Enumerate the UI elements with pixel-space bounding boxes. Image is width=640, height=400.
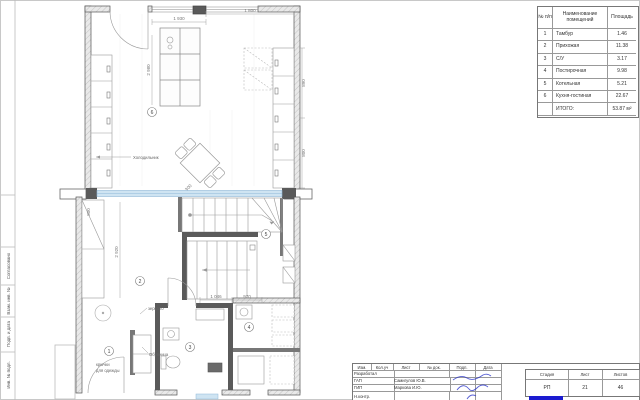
- mirror-callout: зеркало: [140, 306, 164, 314]
- boiler-room: [283, 245, 295, 283]
- row-area: 22.67: [608, 91, 636, 103]
- row-num: 3: [538, 54, 553, 66]
- dim-right-b: 800: [301, 149, 306, 157]
- col-header-area: Площадь: [608, 7, 636, 29]
- dim-top-right: 1 800: [244, 8, 256, 13]
- fridge-label: Холодильник: [133, 155, 159, 160]
- title-block: Изм. Кол.уч Лист № док. Подп. Дата Разра…: [352, 363, 640, 400]
- company-logo-bar: [529, 396, 563, 400]
- col-header-name: Наименование помещений: [553, 7, 608, 29]
- room-badge-6-num: 6: [151, 110, 154, 116]
- title-block-left: Изм. Кол.уч Лист № док. Подп. Дата Разра…: [353, 364, 502, 400]
- total-value: 53.87 м²: [608, 103, 636, 116]
- row-num: 6: [538, 91, 553, 103]
- entry-mat: [196, 394, 218, 399]
- dining-table: [172, 135, 227, 190]
- row-area: 1.46: [608, 29, 636, 41]
- room-badge-2: 2: [136, 277, 145, 286]
- row-area: 11.38: [608, 41, 636, 53]
- frame-side-labels: Согласовано Взам. инв. № Подп. и дата Ин…: [6, 252, 11, 388]
- dim-corridor: 2 920: [114, 246, 119, 258]
- room-badge-3-num: 3: [189, 345, 192, 351]
- row-num: 2: [538, 41, 553, 53]
- kitchen-counter-right: [273, 48, 294, 188]
- hooks-label-2: для одежды: [96, 368, 120, 373]
- room-badge-5: 5: [262, 230, 271, 239]
- dim-bottom-b: 970: [243, 294, 251, 299]
- row-name: С/У: [553, 54, 608, 66]
- hooks-label-1: крючки: [96, 362, 110, 367]
- laundry-fixtures: [236, 305, 294, 384]
- row-area: 5.21: [608, 79, 636, 91]
- col-header-num: № п/п: [538, 7, 553, 29]
- row-name: Постирочная: [553, 66, 608, 78]
- drawing-sheet: Согласовано Взам. инв. № Подп. и дата Ин…: [0, 0, 640, 400]
- window-top-left: [152, 7, 193, 12]
- kitchen-island: [160, 28, 200, 106]
- stage-box: Стадия Лист Листов РП 21 46: [525, 369, 640, 397]
- dim-top-left: 1 930: [173, 16, 185, 21]
- row-name: Кухня-гостиная: [553, 91, 608, 103]
- sheet-value: 21: [568, 379, 603, 396]
- row-num: 4: [538, 66, 553, 78]
- row-name: Котельная: [553, 79, 608, 91]
- dim-closet: 800: [86, 208, 91, 216]
- row-num: 1: [538, 29, 553, 41]
- room-badge-1: 1: [105, 347, 114, 356]
- room-badge-4-num: 4: [248, 325, 251, 331]
- row-name: Тамбур: [553, 29, 608, 41]
- room-badge-3: 3: [186, 343, 195, 352]
- dim-upper-left: 2 980: [146, 64, 151, 76]
- side-label-inv: Инв. № подл.: [6, 361, 11, 388]
- stairs-lower-flight: [182, 232, 258, 300]
- bathroom-fixtures: [161, 309, 224, 372]
- total-blank: [538, 103, 553, 116]
- dim-right-a: 890: [301, 79, 306, 87]
- mirror-label: зеркало: [148, 306, 164, 311]
- row-num: 5: [538, 79, 553, 91]
- row-name: Прихожая: [553, 41, 608, 53]
- room-badge-1-num: 1: [108, 349, 111, 355]
- total-label: ИТОГО:: [553, 103, 608, 116]
- row-area: 3.17: [608, 54, 636, 66]
- room-badge-5-num: 5: [265, 232, 268, 238]
- room-badge-2-num: 2: [139, 279, 142, 285]
- wall-cabinets-dashed: [244, 48, 272, 90]
- tb-role-3: Н.контр.: [353, 391, 395, 400]
- kitchen-counter-left: [91, 55, 112, 188]
- stairs-upper-flight: [182, 198, 282, 232]
- side-label-soglasovano: Согласовано: [6, 252, 11, 279]
- stage-value: РП: [526, 379, 569, 396]
- side-label-vzam: Взам. инв. №: [6, 287, 11, 314]
- dim-bottom-a: 1 046: [210, 294, 222, 299]
- middle-block-walls: [76, 197, 300, 393]
- sheets-value: 46: [602, 379, 640, 396]
- room-badge-6: 6: [148, 108, 157, 117]
- signature-ink: [449, 368, 495, 400]
- room-schedule-table: № п/п Наименование помещений Площадь 1 Т…: [537, 6, 639, 118]
- row-area: 9.98: [608, 66, 636, 78]
- room-badge-4: 4: [245, 323, 254, 332]
- side-label-podp: Подп. и дата: [6, 321, 11, 347]
- tb-name-3: [393, 391, 450, 400]
